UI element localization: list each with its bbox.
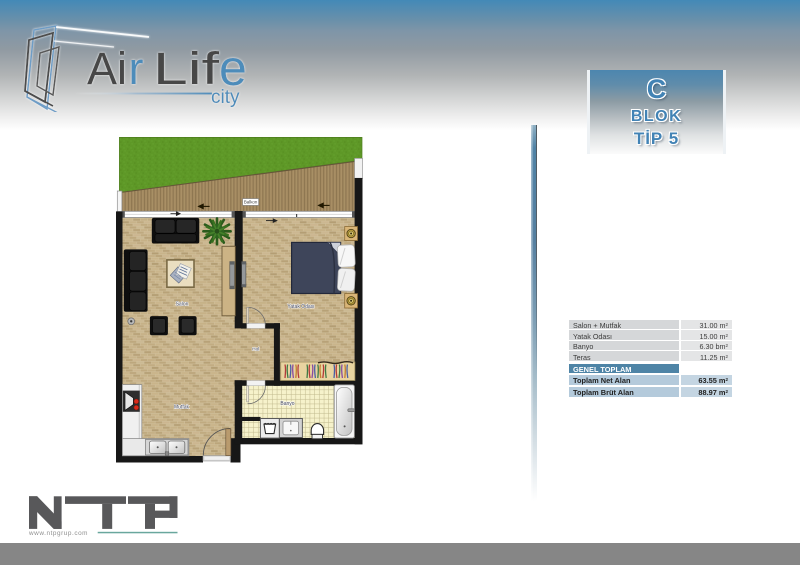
svg-text:Balkon: Balkon [244, 200, 258, 205]
svg-text:Salon: Salon [176, 302, 189, 308]
svg-text:r: r [129, 43, 144, 94]
svg-text:Banyo: Banyo [280, 401, 294, 407]
svg-text:Hol: Hol [252, 346, 259, 351]
svg-text:Mutfak: Mutfak [174, 405, 190, 411]
svg-text:city: city [211, 87, 240, 108]
svg-text:www.ntpgrup.com: www.ntpgrup.com [28, 530, 88, 537]
svg-text:Ai: Ai [87, 43, 127, 94]
svg-text:Yatak Odası: Yatak Odası [287, 304, 314, 310]
svg-text:Lif: Lif [153, 43, 220, 94]
